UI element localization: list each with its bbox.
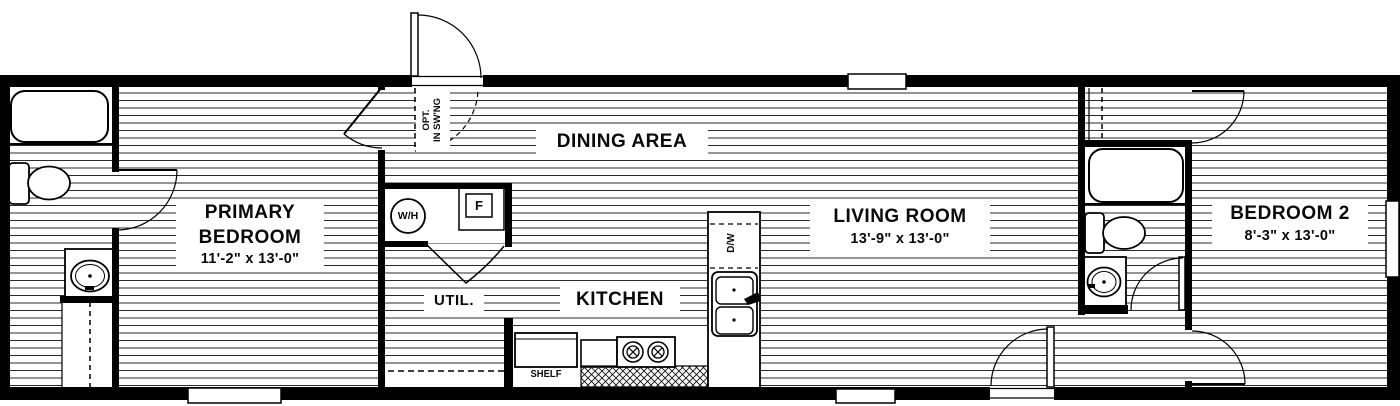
window: [848, 74, 906, 89]
bathtub-icon: [11, 91, 108, 142]
floor-plan: PRIMARY BEDROOM 11'-2" x 13'-0" DINING A…: [0, 0, 1400, 406]
bedroom2-label: BEDROOM 2 8'-3" x 13'-0": [1212, 200, 1368, 248]
room-dimensions: 11'-2" x 13'-0": [176, 250, 324, 269]
kitchen-label: KITCHEN: [560, 287, 680, 314]
shelf-cabinet: [515, 333, 577, 367]
note-line: IN SW'NG: [433, 98, 444, 142]
optional-inswing-note: OPT. IN SW'NG: [416, 88, 450, 152]
kitchen-sink: [712, 272, 761, 336]
shelf-label: SHELF: [521, 368, 571, 382]
room-name: BEDROOM 2: [1212, 202, 1368, 227]
window: [188, 388, 281, 403]
door-leaf: [1179, 257, 1185, 310]
vanity-sink-icon: [1084, 257, 1126, 307]
living-room-label: LIVING ROOM 13'-9" x 13'-0": [810, 203, 990, 251]
door-leaf: [1047, 327, 1054, 387]
window: [1386, 201, 1399, 277]
countertop-crosshatch: [581, 366, 708, 387]
window: [836, 389, 895, 403]
primary-bedroom-label: PRIMARY BEDROOM 11'-2" x 13'-0": [176, 199, 324, 271]
furnace-label: F: [466, 198, 492, 215]
water-heater-label: W/H: [391, 210, 425, 224]
room-name: BEDROOM: [176, 226, 324, 251]
stove: [617, 337, 675, 367]
util-label: UTIL.: [424, 290, 484, 312]
room-name: LIVING ROOM: [810, 205, 990, 230]
door-leaf: [411, 13, 418, 76]
dining-area-label: DINING AREA: [536, 128, 708, 157]
dishwasher-label: D/W: [707, 219, 755, 267]
door-swing-arc: [418, 15, 481, 78]
bathtub-icon: [1089, 149, 1183, 202]
room-name: PRIMARY: [176, 201, 324, 226]
room-dimensions: 8'-3" x 13'-0": [1212, 227, 1368, 246]
room-dimensions: 13'-9" x 13'-0": [810, 230, 990, 249]
vanity-sink-icon: [65, 249, 114, 300]
toilet-icon: [1085, 213, 1145, 253]
